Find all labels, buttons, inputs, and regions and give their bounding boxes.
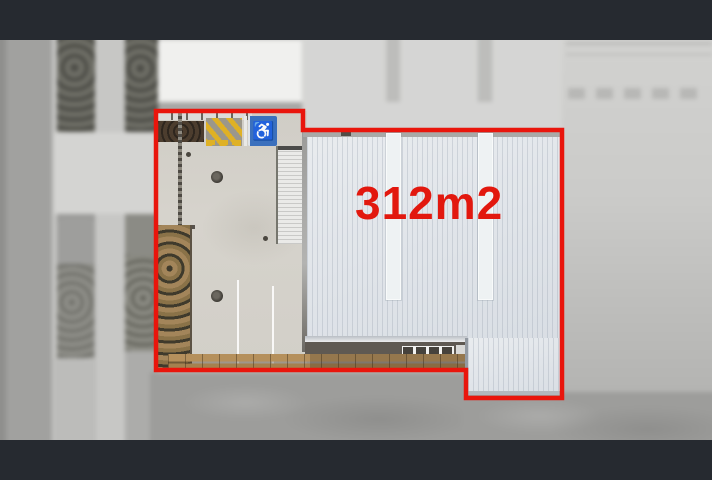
side-garden-bed <box>156 225 192 370</box>
deck-shadow <box>310 354 466 371</box>
warehouse-roof <box>307 130 563 338</box>
street-trees <box>125 40 159 136</box>
drain-pit <box>211 171 223 183</box>
driveway-crossing <box>54 358 96 440</box>
roof-vents-row <box>568 88 708 99</box>
adjoining-unit-roof <box>302 40 566 130</box>
disabled-parking-sign: ♿ <box>248 116 277 146</box>
letterbox-top-bar <box>0 0 712 40</box>
nature-strip-garden <box>125 255 158 351</box>
rear-laneway <box>150 372 468 440</box>
driveway-crossing <box>54 132 158 214</box>
rear-laneway <box>462 392 712 440</box>
aerial-photo: ♿ 312m2 <box>0 40 712 440</box>
wheelchair-icon: ♿ <box>252 122 274 140</box>
drain-pit <box>211 290 223 302</box>
loading-zone-marking <box>206 140 242 145</box>
warehouse-roof-extension <box>465 338 564 395</box>
roof-seam <box>566 42 712 45</box>
roof-vent <box>341 131 351 136</box>
garden-island <box>57 264 94 360</box>
listing-photo-frame: ♿ 312m2 <box>0 0 712 480</box>
footpath <box>95 40 125 440</box>
line-marking <box>244 116 247 146</box>
service-pit <box>186 152 191 157</box>
roof-seam <box>566 53 712 56</box>
adjoining-roof-skylight <box>478 40 492 102</box>
neighbour-roof <box>158 40 302 102</box>
service-pit <box>263 236 268 241</box>
parking-bay <box>57 218 95 264</box>
area-label: 312m2 <box>355 180 503 226</box>
street-trees <box>57 40 96 134</box>
side-fence <box>178 113 182 233</box>
adjoining-roof-skylight <box>386 40 400 102</box>
letterbox-bottom-bar <box>0 440 712 480</box>
street-road <box>0 40 54 440</box>
